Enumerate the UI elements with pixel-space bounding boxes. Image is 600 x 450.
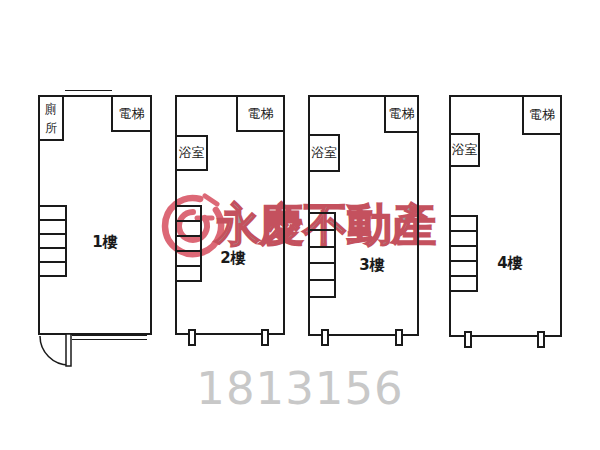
bathroom-room-label: 浴室 (451, 133, 480, 167)
floor-label-2f: 2樓 (220, 249, 245, 268)
listing-number: 1813156 (0, 366, 600, 412)
floor-label-1f: 1樓 (92, 233, 117, 252)
stair-step (451, 262, 476, 277)
floorplan-screenshot: 永慶不動產 1813156 廁所 電梯 1樓 電梯 浴室 2樓 (0, 0, 600, 450)
elevator-room-label: 電梯 (522, 97, 560, 135)
balcony-post (261, 329, 269, 346)
stair-step (310, 281, 334, 296)
stairs (310, 212, 336, 298)
stair-step (40, 207, 65, 221)
elevator-room-label: 電梯 (384, 97, 417, 133)
balcony-post (464, 331, 472, 348)
stair-step (310, 264, 334, 281)
floorplan-floor-4: 電梯 浴室 4樓 (449, 95, 562, 337)
floor-label-3f: 3樓 (359, 256, 384, 275)
stairs (451, 215, 478, 292)
stair-step (310, 214, 334, 231)
balcony-post (395, 329, 403, 346)
bathroom-room-label: 浴室 (310, 134, 340, 172)
stair-step (177, 222, 200, 237)
toilet-room-label: 廁所 (40, 97, 64, 141)
stairs (177, 205, 202, 282)
stair-step (451, 247, 476, 262)
stair-step (40, 235, 65, 249)
stair-step (40, 249, 65, 263)
storefront-sliding-door-bottom (72, 335, 147, 340)
balcony-post (537, 331, 545, 348)
stair-step (177, 237, 200, 252)
elevator-room-label: 電梯 (111, 97, 150, 132)
stair-step (40, 263, 65, 275)
floorplan-floor-2: 電梯 浴室 2樓 (175, 95, 285, 335)
stair-step (40, 221, 65, 235)
stair-step (310, 248, 334, 265)
balcony-post (321, 329, 329, 346)
floorplan-floor-3: 電梯 浴室 3樓 (308, 95, 419, 336)
stair-step (310, 231, 334, 248)
floorplan-floor-1: 廁所 電梯 1樓 (38, 95, 152, 335)
stair-step (451, 217, 476, 232)
stairs (40, 205, 67, 277)
bathroom-room-label: 浴室 (177, 135, 208, 171)
stair-step (177, 267, 200, 280)
elevator-room-label: 電梯 (236, 97, 283, 132)
storefront-window-top (65, 90, 112, 96)
balcony-post (188, 329, 196, 346)
stair-step (451, 277, 476, 290)
stair-step (451, 232, 476, 247)
floor-label-4f: 4樓 (497, 254, 522, 273)
stair-step (177, 252, 200, 267)
stair-step (177, 207, 200, 222)
